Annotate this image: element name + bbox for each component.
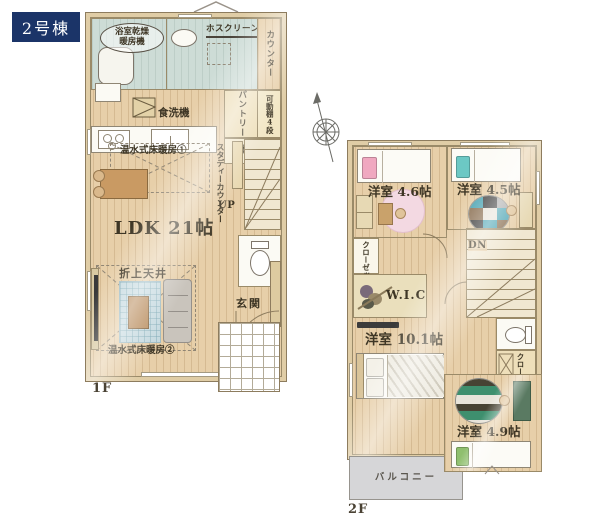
closet-left-label: クローゼット (362, 241, 371, 271)
bath-dryer-label: 浴室乾燥 暖房機 (100, 23, 164, 53)
window (536, 171, 540, 205)
dn-label: DN (468, 240, 487, 251)
hosuclean-rail (206, 36, 258, 38)
toilet-tank-1f (251, 241, 269, 249)
compass-icon (300, 90, 354, 166)
sofa (163, 279, 192, 343)
bed-101 (356, 353, 444, 399)
window (349, 363, 353, 397)
closet-left: クローゼット (353, 238, 379, 274)
bed-46 (357, 149, 431, 183)
chair-45 (506, 205, 517, 216)
window (87, 129, 91, 155)
kitchen-vanity (95, 83, 121, 102)
shelf-46 (356, 195, 373, 229)
gutter-arrow-icon (483, 464, 501, 476)
dining-chair (93, 186, 105, 198)
study-counter-label: スタディーカウンター (216, 143, 226, 191)
pillow-pink (362, 157, 377, 179)
dishwasher-icon (132, 97, 156, 118)
chair-46 (395, 208, 406, 219)
bathroom: 浴室乾燥 暖房機 (91, 18, 167, 90)
desk-49 (513, 381, 531, 421)
window (178, 14, 212, 18)
coffee-table (128, 296, 149, 329)
counter-nook: カウンター (257, 18, 281, 90)
hosuclean-area (207, 43, 231, 65)
study-counter (232, 141, 243, 189)
hosuclean-label: ホスクリーン (206, 25, 260, 35)
window (368, 142, 412, 146)
floor-heating2-label: 温水式床暖房② (108, 346, 175, 357)
floor1-tag: 1F (92, 381, 112, 396)
pillow-teal (456, 156, 470, 178)
pillow (366, 378, 384, 397)
ldk-label: LDK 21帖 (114, 219, 214, 239)
chair-49 (499, 395, 510, 406)
toilet-room-2f (496, 318, 536, 350)
bed-45 (451, 148, 521, 182)
toilet-bowl-2f (505, 327, 526, 343)
pillow (366, 358, 384, 377)
bedroom-10-1-label: 洋室 10.1帖 (365, 333, 443, 348)
entrance-porch (218, 322, 280, 392)
floor2-tag: 2F (348, 502, 368, 517)
bedroom-4-6-label: 洋室 4.6帖 (368, 185, 432, 199)
toilet-tank-2f (525, 326, 532, 344)
rug-green (455, 378, 503, 424)
door-arc (422, 233, 448, 259)
dining-chair (93, 170, 105, 182)
pillow-green (456, 447, 469, 466)
window (141, 372, 221, 377)
bedroom-4-6: 洋室 4.6帖 (353, 146, 447, 238)
balcony-label: バルコニー (375, 473, 437, 484)
pantry: パントリー (224, 90, 258, 138)
tv-2f (357, 322, 399, 328)
washroom: ホスクリーン (166, 18, 258, 90)
desk-45 (519, 192, 533, 228)
wic-room: W.I.C (353, 274, 427, 318)
door-arc (444, 281, 468, 305)
study-counter-label-box: スタディーカウンター (210, 139, 232, 195)
stairs-1f (244, 138, 281, 230)
window (460, 142, 510, 146)
coffered-ceiling-label: 折上天井 (119, 268, 167, 280)
dining-table (100, 169, 148, 199)
movable-shelf-label: 可動棚4段 (265, 95, 273, 134)
up-label: UP (218, 200, 235, 211)
counter-label: カウンター (264, 30, 274, 78)
bath-dryer-line2: 暖房機 (115, 38, 149, 48)
toilet-bowl-1f (250, 250, 270, 276)
wic-label: W.I.C (386, 289, 426, 302)
floorplan-page: { "badge": { "text": "2号棟", "bg": "#1b34… (0, 0, 600, 524)
dishwasher-label: 食洗機 (158, 108, 190, 120)
bedroom-4-5: 洋室 4.5帖 (447, 146, 536, 230)
desk-46 (378, 203, 393, 225)
bedroom-4-9: 洋室 4.9帖 (444, 374, 542, 472)
bedroom-4-5-label: 洋室 4.5帖 (457, 183, 521, 197)
movable-shelf: 可動棚4段 (257, 90, 281, 138)
floor-heating1-label: 温水式床暖房① (120, 146, 187, 157)
washbasin (171, 29, 197, 47)
bedroom-4-9-label: 洋室 4.9帖 (457, 425, 521, 439)
pantry-label: パントリー (236, 90, 246, 138)
tv-1f (94, 275, 98, 341)
building-badge: 2号棟 (12, 12, 80, 42)
window (87, 271, 91, 311)
